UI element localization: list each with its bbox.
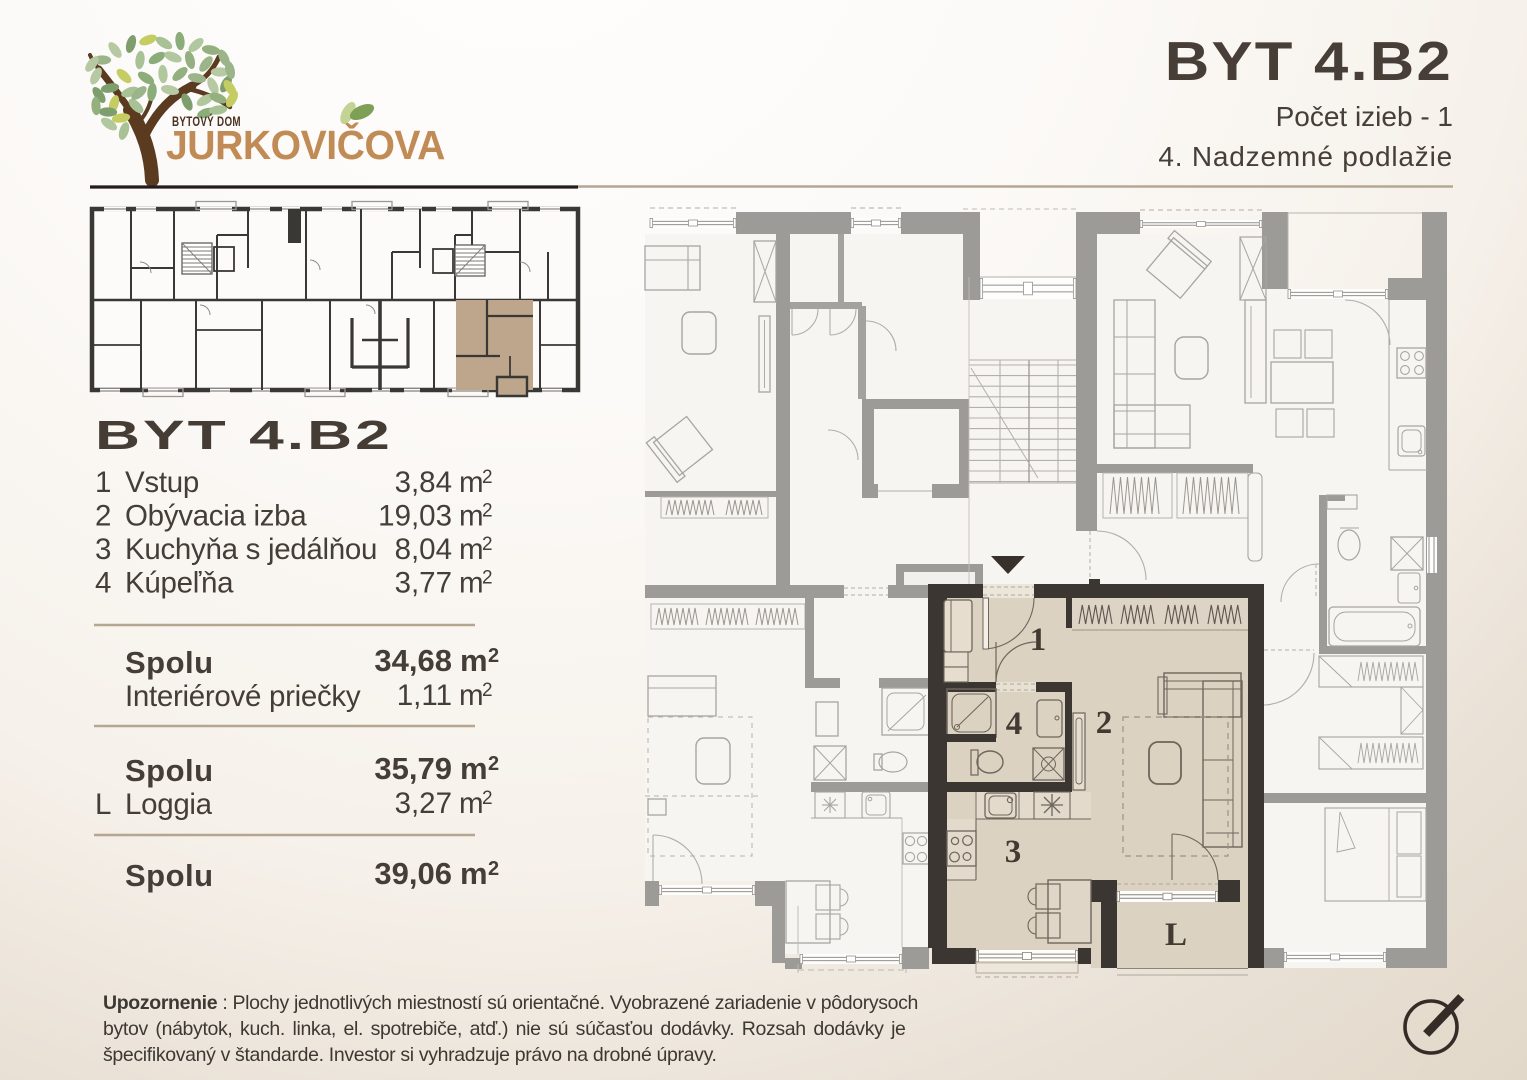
svg-text:4: 4	[95, 567, 111, 600]
svg-text:4: 4	[1006, 706, 1023, 742]
svg-text:2: 2	[482, 568, 493, 589]
svg-text:Interiérové priečky: Interiérové priečky	[125, 680, 361, 713]
svg-text:2: 2	[1096, 705, 1113, 741]
svg-text:3,77: 3,77	[395, 567, 452, 600]
svg-text:m: m	[459, 567, 484, 600]
svg-text:2: 2	[488, 645, 499, 667]
svg-text:Kuchyňa s jedálňou: Kuchyňa s jedálňou	[125, 533, 377, 566]
svg-text:4. Nadzemné podlažie: 4. Nadzemné podlažie	[1158, 141, 1453, 172]
svg-text:3: 3	[1005, 834, 1022, 870]
svg-text:m: m	[459, 500, 484, 533]
svg-text:Počet izieb - 1: Počet izieb - 1	[1276, 101, 1453, 132]
svg-text:m: m	[459, 787, 484, 820]
svg-text:L: L	[1165, 917, 1187, 953]
svg-text:8,04: 8,04	[395, 533, 452, 566]
svg-text:3,84: 3,84	[395, 466, 452, 499]
svg-text:39,06: 39,06	[374, 856, 452, 891]
svg-text:2: 2	[482, 534, 493, 555]
svg-text:Vstup: Vstup	[125, 466, 199, 499]
svg-text:3: 3	[95, 533, 111, 566]
svg-text:35,79: 35,79	[374, 751, 452, 786]
svg-text:m: m	[459, 533, 484, 566]
svg-text:JURKOVIČOVA: JURKOVIČOVA	[166, 121, 445, 168]
svg-text:19,03: 19,03	[378, 500, 452, 533]
svg-text:m: m	[459, 679, 484, 712]
svg-text:2: 2	[95, 500, 111, 533]
svg-text:bytov (nábytok, kuch. linka, e: bytov (nábytok, kuch. linka, el. spotreb…	[103, 1018, 906, 1040]
svg-text:m: m	[459, 466, 484, 499]
svg-text:Kúpeľňa: Kúpeľňa	[125, 567, 234, 600]
svg-text:BYT 4.B2: BYT 4.B2	[1165, 31, 1453, 92]
svg-text:3,27: 3,27	[395, 787, 452, 820]
svg-text:BYT 4.B2: BYT 4.B2	[95, 412, 393, 458]
svg-text:m: m	[460, 856, 488, 891]
svg-text:2: 2	[488, 753, 499, 775]
svg-text:m: m	[460, 751, 488, 786]
svg-text:Loggia: Loggia	[125, 788, 213, 821]
svg-text:Spolu: Spolu	[125, 858, 214, 893]
svg-text:L: L	[95, 788, 111, 821]
svg-text:2: 2	[482, 501, 493, 522]
svg-text:špecifikovaný v štandarde. Inv: špecifikovaný v štandarde. Investor si v…	[103, 1044, 717, 1066]
svg-text:1: 1	[95, 466, 111, 499]
svg-text:Spolu: Spolu	[125, 753, 214, 788]
svg-text:34,68: 34,68	[374, 643, 452, 678]
svg-text:2: 2	[482, 680, 493, 701]
svg-text:1,11: 1,11	[397, 679, 452, 712]
svg-text:m: m	[460, 643, 488, 678]
svg-text:2: 2	[482, 788, 493, 809]
svg-text:1: 1	[1030, 622, 1047, 658]
svg-text:2: 2	[482, 467, 493, 488]
svg-text:Upozornenie : Plochy jednotliv: Upozornenie : Plochy jednotlivých miestn…	[103, 992, 918, 1014]
svg-text:Obývacia izba: Obývacia izba	[125, 500, 307, 533]
svg-text:Spolu: Spolu	[125, 645, 214, 680]
svg-text:2: 2	[488, 858, 499, 880]
